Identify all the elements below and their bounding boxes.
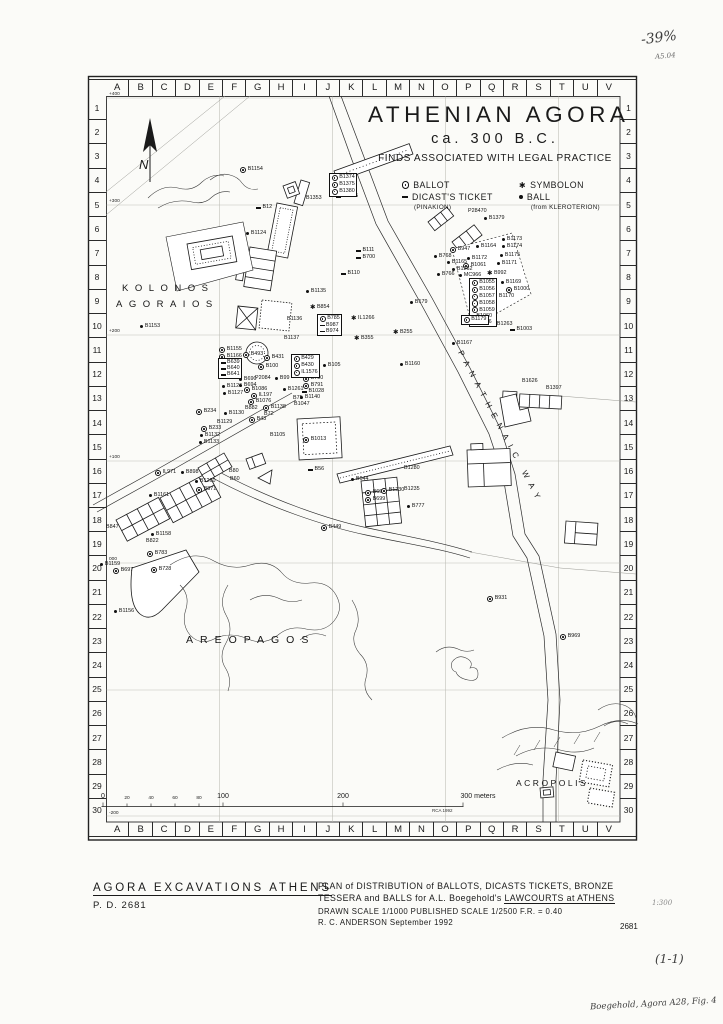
ticket-icon (341, 273, 346, 275)
find-marker: B1379 (484, 216, 504, 221)
scale-tick-label: 0 (101, 793, 105, 800)
grid-row-label: 18 (88, 507, 106, 531)
find-marker: B969 (560, 634, 580, 640)
ballot-icon (196, 487, 202, 493)
find-label: B882 (245, 406, 258, 411)
ball-icon (224, 412, 227, 415)
find-marker: B12 (256, 205, 272, 210)
ballot-icon (264, 355, 270, 361)
elevation-label: -200 (109, 811, 119, 816)
find-marker: B1280 (404, 466, 420, 471)
grid-row-label: 24 (88, 652, 106, 676)
grid-column-label: B (128, 79, 151, 96)
legend-item: BALL (519, 192, 600, 202)
elevation-label: +400 (109, 92, 120, 97)
find-marker: B728 (151, 567, 171, 573)
find-marker-group: B639B640B641 (218, 358, 242, 379)
find-marker: B1159 (100, 562, 120, 567)
find-marker: B111 (356, 248, 374, 253)
find-marker: B1172 (467, 256, 487, 261)
find-marker: B431 (264, 355, 284, 361)
find-label: B1169 (506, 280, 521, 285)
find-marker: B493 (243, 352, 263, 358)
scale-tick-label: 80 (196, 796, 201, 801)
grid-column-label: R (503, 79, 526, 96)
find-label: B80 (229, 469, 239, 474)
symbolon-icon: ✱ (519, 183, 526, 188)
handwritten-series: (1-1) (655, 952, 684, 966)
grid-column-label: H (269, 822, 292, 836)
grid-column-label: D (175, 822, 198, 836)
find-label: B1130 (229, 411, 244, 416)
find-label: B699 (373, 497, 386, 502)
grid-row-label: 26 (88, 701, 106, 725)
ticket-icon (221, 362, 226, 364)
grid-column-label: O (433, 79, 456, 96)
ballot-icon (365, 497, 371, 503)
grid-row-label: 14 (88, 410, 106, 434)
north-arrow-icon (143, 118, 157, 182)
grid-column-label: D (175, 79, 198, 96)
ball-icon (275, 377, 278, 380)
grid-row-label: 28 (88, 749, 106, 773)
ball-icon (200, 434, 203, 437)
grid-column-label: Q (480, 822, 503, 836)
find-label: B783 (155, 551, 168, 556)
ballot-icon (113, 568, 119, 574)
find-label: B1058 (479, 301, 495, 306)
ticket-icon (308, 469, 313, 471)
region-label: AREOPAGOS (186, 634, 315, 646)
find-marker: B1127 (223, 391, 243, 396)
find-label: B947 (458, 247, 471, 252)
find-label: B1136 (287, 317, 302, 322)
ball-icon (447, 261, 450, 264)
grid-column-label: G (245, 79, 268, 96)
ballot-icon (472, 287, 478, 293)
find-label: B1167 (457, 341, 472, 346)
map-subtitle: FINDS ASSOCIATED WITH LEGAL PRACTICE (368, 153, 622, 164)
find-label: B1158 (156, 532, 171, 537)
find-label: P2084 (255, 376, 271, 381)
find-label: B1055 (479, 280, 495, 285)
grid-row-label: 29 (620, 774, 637, 798)
find-marker: B1154 (240, 167, 263, 173)
find-marker: IL971 (155, 470, 176, 476)
legend-item-label: SYMBOLON (530, 180, 584, 190)
grid-column-label: E (199, 822, 222, 836)
find-marker: B1174 (502, 244, 522, 249)
find-label: B974 (326, 329, 339, 334)
elevation-label: +300 (109, 199, 120, 204)
grid-row-label: 18 (620, 507, 637, 531)
find-label: IL1576 (301, 370, 318, 375)
find-label: B992 (494, 271, 507, 276)
ball-icon (410, 301, 413, 304)
ballot-icon (151, 567, 157, 573)
find-label: B1375 (339, 182, 355, 187)
ballot-icon (402, 181, 409, 188)
find-marker: B1173 (502, 237, 522, 242)
grid-row-label: 8 (620, 265, 637, 289)
find-marker: B56 (308, 467, 324, 472)
find-label: B644 (356, 477, 369, 482)
find-label: B1171 (502, 261, 517, 266)
grid-column-label: A (106, 822, 128, 836)
find-marker: B644 (351, 477, 368, 482)
legend-item-label: BALLOT (413, 180, 450, 190)
find-marker: B1133 (199, 440, 219, 445)
find-marker: B1260 (195, 479, 215, 484)
find-marker: B1171 (497, 261, 517, 266)
ball-icon (437, 273, 440, 276)
find-label: B641 (227, 372, 240, 377)
grid-column-label: K (339, 79, 362, 96)
region-label: ACROPOLIS (516, 778, 588, 788)
ballot-icon (332, 182, 338, 188)
ballot-icon (332, 175, 338, 181)
ball-icon (351, 478, 354, 481)
find-marker: B1353 (306, 196, 322, 201)
ball-icon (519, 195, 523, 199)
grid-row-label: 19 (620, 531, 637, 555)
grid-row-label: 19 (88, 531, 106, 555)
grid-row-label: 2 (88, 119, 106, 143)
find-marker: IL1576 (294, 370, 318, 376)
find-marker: P28470 (468, 209, 487, 214)
find-label: B1280 (404, 466, 420, 471)
grid-row-label: 10 (620, 313, 637, 337)
find-label: B255 (400, 330, 413, 335)
find-marker: B768 (434, 254, 451, 259)
ball-icon (501, 281, 504, 284)
find-label: IL1266 (358, 316, 375, 321)
find-marker: B766 (437, 272, 454, 277)
ball-icon (502, 238, 505, 241)
find-label: B1175 (505, 253, 520, 258)
grid-column-label: Q (480, 79, 503, 96)
grid-column-label: J (316, 822, 339, 836)
elevation-label: +100 (109, 455, 120, 460)
find-label: B1076 (256, 399, 272, 404)
legend-column: BALLOTDICAST'S TICKET(PINAKION) (402, 180, 493, 211)
find-marker: B1047 (294, 402, 310, 407)
scanned-map-sheet: ABCDEFGHIJKLMNOPQRSTUV ABCDEFGHIJKLMNOPQ… (0, 0, 723, 1024)
grid-column-label: G (245, 822, 268, 836)
find-label: B1047 (294, 402, 310, 407)
caption-pd-number: P. D. 2681 (93, 900, 147, 911)
grid-row-label: 11 (620, 337, 637, 361)
grid-row-label: 12 (620, 362, 637, 386)
find-marker-group: B1374B1375B1380 (329, 173, 357, 197)
title-block: ATHENIAN AGORA ca. 300 B.C. FINDS ASSOCI… (368, 102, 622, 164)
grid-row-label: 26 (620, 701, 637, 725)
ballot-icon (303, 437, 309, 443)
ball-icon (239, 384, 242, 387)
find-label: B12 (263, 205, 273, 210)
ball-icon (502, 245, 505, 248)
grid-row-label: 27 (88, 725, 106, 749)
find-marker: B110 (341, 271, 360, 276)
grid-row-label: 30 (88, 798, 106, 822)
find-label: B1172 (472, 256, 487, 261)
find-marker: ✱B355 (354, 336, 374, 341)
find-label: B697 (121, 568, 134, 573)
symbolon-icon: ✱ (393, 331, 398, 335)
find-label: B431 (272, 355, 285, 360)
ballot-icon (258, 364, 264, 370)
grid-row-label: 7 (620, 240, 637, 264)
ball-icon (467, 257, 470, 260)
ticket-icon (221, 374, 226, 376)
find-label: B1154 (248, 167, 263, 172)
find-marker: B974 (320, 329, 340, 334)
find-label: B1105 (270, 433, 285, 438)
find-marker: B641 (221, 372, 240, 377)
find-label: B768 (439, 254, 452, 259)
find-label: B1133 (204, 440, 219, 445)
grid-row-label: 21 (88, 580, 106, 604)
find-marker: B783 (147, 551, 167, 557)
find-label: B1626 (522, 379, 538, 384)
find-marker: B882 (245, 406, 258, 411)
grid-row-label: 23 (620, 628, 637, 652)
ticket-icon (320, 325, 325, 327)
ballot-icon (147, 551, 153, 557)
find-label: B1057 (479, 294, 495, 299)
grid-column-label: F (222, 79, 245, 96)
find-marker: B100 (258, 364, 278, 370)
grid-column-label: F (222, 822, 245, 836)
ballot-icon (244, 387, 250, 393)
find-label: B449 (329, 525, 342, 530)
find-label: B969 (568, 634, 581, 639)
find-marker: B1130 (224, 411, 244, 416)
find-marker: B1137 (284, 336, 299, 341)
ballot-icon (249, 417, 255, 423)
map-date: ca. 300 B.C. (368, 131, 622, 147)
grid-row-label: 15 (88, 434, 106, 458)
grid-columns-bottom: ABCDEFGHIJKLMNOPQRSTUV (106, 822, 620, 836)
find-marker: B1161 (149, 493, 169, 498)
find-label: B1137 (284, 336, 299, 341)
find-marker: B1153 (140, 324, 160, 329)
grid-row-label: 1 (88, 96, 106, 119)
find-marker: B1156 (114, 609, 134, 614)
find-label: B1124 (251, 231, 266, 236)
grid-column-label: U (573, 822, 596, 836)
find-marker: B179 (410, 300, 427, 305)
grid-row-label: 13 (88, 386, 106, 410)
ball-icon (407, 505, 410, 508)
grid-row-label: 17 (88, 483, 106, 507)
elevation-label: +200 (109, 329, 120, 334)
grid-column-label: H (269, 79, 292, 96)
caption-line2-underlined: LAWCOURTS at ATHENS (504, 893, 614, 904)
grid-row-label: 6 (88, 216, 106, 240)
handwritten-ratio: 1:300 (652, 899, 672, 907)
find-marker: B1003 (510, 327, 532, 332)
ballot-icon (294, 356, 300, 362)
ticket-icon (256, 207, 261, 209)
ballot-icon (381, 488, 387, 494)
find-label: B493 (251, 352, 264, 357)
find-label: B429 (301, 356, 314, 361)
grid-column-label: P (456, 822, 479, 836)
ballot-icon (294, 370, 300, 376)
grid-column-label: P (456, 79, 479, 96)
grid-row-label: 24 (620, 652, 637, 676)
find-marker: P2084 (255, 376, 271, 381)
find-marker: B1058 (472, 300, 495, 306)
grid-row-label: 17 (620, 483, 637, 507)
grid-column-label: L (362, 79, 385, 96)
find-label: B1374 (339, 175, 355, 180)
legend-item-label: DICAST'S TICKET (412, 192, 493, 202)
ballot-icon (321, 525, 327, 531)
find-marker: B1057 (472, 294, 495, 300)
find-label: B1397 (546, 386, 562, 391)
ticket-icon (320, 331, 325, 333)
ball-icon (452, 342, 455, 345)
grid-row-label: 20 (88, 555, 106, 579)
caption-line2-text: TESSERA and BALLS for A.L. Boegehold's (318, 893, 504, 903)
ball-icon (140, 325, 143, 328)
find-label: P28470 (468, 209, 487, 214)
grid-column-label: V (597, 822, 620, 836)
find-label: B43 (257, 417, 267, 422)
find-label: B179 (415, 300, 428, 305)
grid-row-label: 23 (88, 628, 106, 652)
find-marker: B1261 (283, 387, 303, 392)
find-marker: B699 (365, 497, 385, 503)
grid-column-label: M (386, 79, 409, 96)
find-marker: B449 (321, 525, 341, 531)
grid-row-label: 4 (620, 168, 637, 192)
grid-row-label: 22 (620, 604, 637, 628)
west-road (93, 393, 472, 558)
find-label: B1155 (227, 347, 242, 352)
caption-line1: PLAN of DISTRIBUTION of BALLOTS, DICASTS… (318, 881, 614, 891)
find-label: B1379 (489, 216, 505, 221)
ticket-icon (356, 250, 361, 252)
find-label: B931 (495, 596, 508, 601)
grid-row-label: 25 (620, 677, 637, 701)
grid-column-label: V (597, 79, 620, 96)
find-marker: B99 (275, 376, 289, 381)
find-marker: ✱B854 (310, 305, 330, 310)
ball-icon (181, 471, 184, 474)
find-label: B1380 (339, 189, 355, 194)
scale-tick-label: 300 meters (460, 793, 495, 800)
grid-column-label: K (339, 822, 362, 836)
ballot-icon (472, 294, 478, 300)
ball-icon (497, 262, 500, 265)
caption-line2: TESSERA and BALLS for A.L. Boegehold's L… (318, 893, 615, 903)
scale-bar (102, 803, 464, 807)
ball-icon (500, 254, 503, 257)
find-marker: ✱B992 (487, 271, 507, 276)
ball-icon (400, 363, 403, 366)
find-marker: B847 (106, 525, 119, 530)
find-marker: B1132 (200, 433, 220, 438)
caption-heading: AGORA EXCAVATIONS ATHENS (93, 882, 332, 896)
grid-column-label: C (152, 822, 175, 836)
find-marker: B1105 (270, 433, 285, 438)
grid-row-label: 27 (620, 725, 637, 749)
grid-row-label: 14 (620, 410, 637, 434)
find-marker: B871 (196, 487, 216, 493)
ball-icon (114, 610, 117, 613)
find-marker: B947 (450, 247, 470, 253)
legend-column: ✱SYMBOLONBALL(from KLEROTERION) (519, 180, 600, 211)
find-label: B1140 (305, 395, 320, 400)
grid-row-label: 15 (620, 434, 637, 458)
legend-item: DICAST'S TICKET (402, 192, 493, 202)
find-label: B1174 (507, 244, 522, 249)
grid-row-label: 9 (620, 289, 637, 313)
find-label: B105 (328, 363, 341, 368)
find-label: B728 (159, 567, 172, 572)
grid-row-label: 22 (88, 604, 106, 628)
find-label: B1013 (311, 437, 327, 442)
scale-tick-label: 20 (124, 796, 129, 801)
legend: BALLOTDICAST'S TICKET(PINAKION)✱SYMBOLON… (402, 180, 600, 211)
find-marker: B1179 (464, 317, 487, 323)
ballot-icon (472, 300, 478, 306)
grid-row-label: 30 (620, 798, 637, 822)
find-label: B111 (363, 248, 375, 253)
ticket-icon (402, 196, 408, 198)
find-label: B1164 (481, 244, 496, 249)
find-label: IL971 (163, 470, 177, 475)
caption-plate-number: 2681 (620, 922, 638, 931)
ballot-icon (240, 167, 246, 173)
find-marker: B1140 (300, 395, 320, 400)
ball-icon (222, 385, 225, 388)
find-label: B898 (186, 470, 199, 475)
find-label: B1260 (200, 479, 216, 484)
ball-icon (149, 494, 152, 497)
scale-credit: RCA 1992 (432, 808, 453, 813)
legend-item-sublabel: (from KLEROTERION) (531, 204, 600, 211)
find-marker: B700 (356, 255, 375, 260)
find-label: B1160 (405, 362, 420, 367)
ball-icon (100, 563, 103, 566)
grid-row-label: 3 (620, 143, 637, 167)
grid-row-label: 5 (620, 192, 637, 216)
grid-row-label: 12 (88, 362, 106, 386)
grid-column-label: S (526, 822, 549, 836)
ball-icon (246, 232, 249, 235)
find-label: B1161 (154, 493, 169, 498)
find-marker: B1164 (476, 244, 496, 249)
find-marker-group: B429B430IL1576 (291, 354, 320, 378)
find-marker: B1175 (500, 253, 520, 258)
find-marker: B697 (113, 568, 133, 574)
find-label: B1132 (205, 433, 220, 438)
find-marker: B234 (196, 409, 216, 415)
find-label: B871 (204, 487, 217, 492)
legend-item: BALLOT (402, 180, 493, 190)
find-label: B854 (317, 305, 330, 310)
find-label: B1000 (514, 287, 530, 292)
find-marker: B1135 (306, 289, 326, 294)
grid-row-label: 11 (88, 337, 106, 361)
find-label: B1061 (471, 263, 487, 268)
grid-column-label: L (362, 822, 385, 836)
ball-icon (459, 274, 462, 277)
